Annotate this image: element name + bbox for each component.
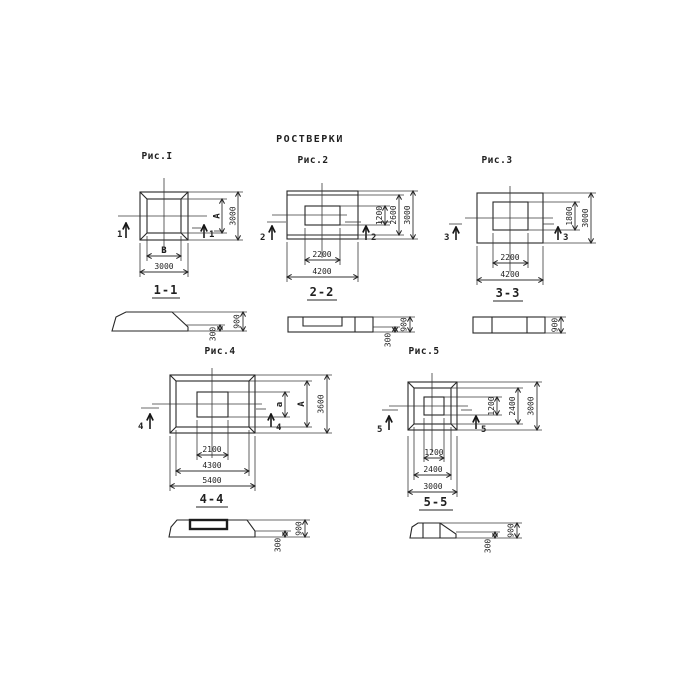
fig3-section-label: 3-3: [496, 286, 521, 300]
section3-total-height: 900: [551, 318, 560, 333]
fig3-cut-label: 3: [563, 233, 568, 243]
fig2-dim-inner-width: 2200: [312, 250, 331, 259]
section2-profile: [288, 317, 373, 332]
fig3-dim-inner-height: 1800: [565, 206, 574, 225]
fig5-cut-label: 5: [377, 425, 382, 435]
fig3-caption: Рис.3: [481, 155, 512, 166]
fig3-dim-inner-width: 2200: [500, 253, 519, 262]
fig5-dimensions: 1200 2400 3000 1200 2400 3000: [408, 382, 542, 497]
engineering-drawing-sheet: РОСТВЕРКИ Рис.I 1 1 A 3000 B: [0, 0, 700, 700]
section1-profile: [112, 312, 188, 331]
fig4-caption: Рис.4: [204, 346, 235, 357]
fig1-cut-label: 1: [209, 230, 214, 240]
fig2-dim-outer-width: 4200: [312, 267, 331, 276]
fig5-dim-inner-height: 1200: [487, 396, 496, 415]
fig1-plan: Рис.I 1 1 A 3000 B 3000: [117, 151, 243, 298]
fig4-cut-label: 4: [138, 422, 144, 432]
fig1-section-label: 1-1: [154, 283, 179, 297]
fig5-caption: Рис.5: [408, 346, 439, 357]
fig3-cut-label: 3: [444, 233, 449, 243]
fig3-dimensions: 1800 3000 2200 4200: [477, 193, 596, 285]
fig2-dimensions: 1200 2600 3000 2200 4200: [287, 191, 418, 282]
fig5-plan: Рис.5 5 5 1200 2400 3000: [377, 346, 542, 510]
section1-step-height: 300: [209, 327, 218, 342]
fig2-caption: Рис.2: [297, 155, 328, 166]
fig4-dim-inner-height: a: [275, 402, 285, 407]
fig4-dim-inner-width: 2100: [202, 445, 221, 454]
section-view-4-4: 300 900: [169, 520, 310, 552]
fig5-dim-outer-width: 3000: [423, 482, 442, 491]
fig3-dim-outer-width: 4200: [500, 270, 519, 279]
fig1-cut-mark-right: 1: [192, 225, 224, 240]
fig4-cut-mark-left: 4: [138, 408, 159, 432]
fig4-dim-outer-height: 3600: [317, 394, 326, 413]
fig4-section-label: 4-4: [200, 492, 225, 506]
fig4-dim-mid-width: 4300: [202, 461, 221, 470]
fig3-plan: Рис.3 3 3 1800 3000 2200 4200: [444, 155, 596, 301]
fig5-dim-inner-width: 1200: [424, 448, 443, 457]
fig4-inner-rect: [197, 392, 228, 417]
section3-profile: [473, 317, 545, 333]
fig1-cut-mark-left: 1: [117, 223, 126, 240]
fig3-cut-mark-left: 3: [444, 224, 462, 243]
section5-total-height: 900: [507, 523, 516, 538]
fig3-dim-outer-height: 3000: [581, 208, 590, 227]
fig4-dim-outer-width: 5400: [202, 476, 221, 485]
fig2-plan: Рис.2 2 2 1200 2600 3000: [260, 155, 418, 300]
fig3-cut-mark-right: 3: [543, 224, 568, 243]
fig4-dim-mid-height: A: [297, 401, 307, 407]
section-view-5-5: 300 900: [410, 523, 522, 553]
fig5-section-label: 5-5: [424, 495, 449, 509]
fig2-cut-label: 2: [371, 233, 376, 243]
fig5-dim-outer-height: 3000: [527, 396, 536, 415]
section-view-2-2: 300 900: [288, 317, 415, 347]
section2-total-height: 900: [400, 317, 409, 332]
fig2-dim-outer-height: 3000: [403, 205, 412, 224]
section-view-1-1: 300 900: [112, 312, 247, 341]
fig2-section-label: 2-2: [310, 285, 335, 299]
fig2-cut-label: 2: [260, 233, 265, 243]
grillage-drawing: РОСТВЕРКИ Рис.I 1 1 A 3000 B: [0, 0, 700, 700]
fig1-dim-outer-height: 3000: [229, 206, 238, 225]
fig1-caption: Рис.I: [141, 151, 172, 162]
fig4-cut-mark-right: 4: [256, 409, 282, 433]
fig2-dim-mid-height: 2600: [389, 205, 398, 224]
section1-total-height: 900: [233, 314, 242, 329]
fig5-cut-mark-left: 5: [377, 410, 398, 435]
fig1-dimensions: A 3000 B 3000: [140, 192, 243, 277]
section-view-3-3: 900: [473, 317, 566, 333]
fig1-dim-inner-height: A: [213, 213, 223, 219]
fig5-cut-mark-right: 5: [461, 410, 486, 435]
fig2-inner-rect: [305, 206, 340, 225]
section5-step-height: 300: [484, 539, 493, 554]
fig2-cut-mark-left: 2: [260, 222, 286, 243]
fig4-cut-label: 4: [276, 423, 282, 433]
fig2-dim-inner-height: 1200: [375, 206, 384, 225]
drawing-title: РОСТВЕРКИ: [276, 134, 344, 145]
fig5-dim-mid-width: 2400: [423, 465, 442, 474]
section4-step-height: 300: [274, 538, 283, 553]
section4-recess: [190, 520, 227, 529]
fig1-dim-inner-width: B: [161, 246, 167, 256]
fig4-plan: Рис.4 4 4 a A 3600 2: [138, 346, 332, 507]
section2-step-height: 300: [384, 333, 393, 348]
fig5-dim-mid-height: 2400: [508, 396, 517, 415]
fig3-inner-rect: [493, 202, 528, 230]
fig1-cut-label: 1: [117, 230, 122, 240]
section4-total-height: 900: [295, 521, 304, 536]
fig1-dim-outer-width: 3000: [154, 262, 173, 271]
section5-profile: [410, 523, 456, 538]
